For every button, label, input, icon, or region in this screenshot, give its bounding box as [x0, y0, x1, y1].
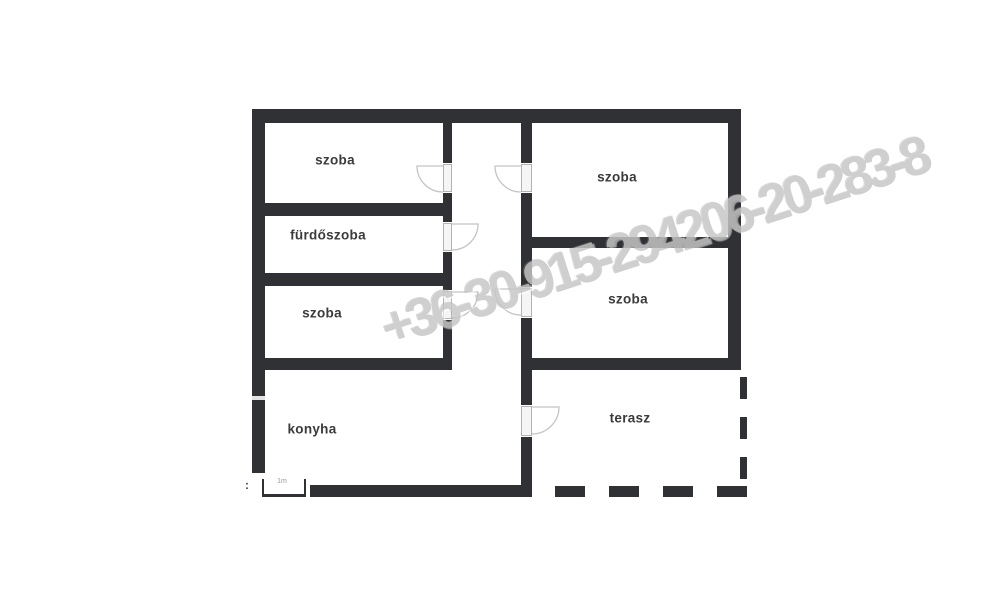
- room-label-konyha: konyha: [287, 422, 336, 437]
- wall-divider-szoba-terasz: [521, 358, 741, 370]
- wall-hall-left-seg1: [443, 120, 452, 163]
- wall-hall-right-seg3: [521, 318, 532, 405]
- door-arc-szoba-top-left: [417, 166, 443, 192]
- wall-hall-left-seg2: [443, 193, 452, 222]
- wall-outer-top: [252, 109, 741, 123]
- door-arc-furdoszoba: [452, 224, 478, 250]
- room-label-szoba-top-left: szoba: [315, 153, 355, 168]
- scale-label: 1m: [262, 478, 302, 485]
- room-label-szoba-mid-right: szoba: [608, 292, 648, 307]
- door-szoba-top-left: [443, 164, 452, 192]
- terrace-dashed-border-bottom: [532, 486, 747, 497]
- wall-joint-notch: [252, 396, 265, 400]
- room-label-szoba-top-right: szoba: [597, 170, 637, 185]
- room-label-terasz: terasz: [610, 411, 651, 426]
- wall-hall-right-seg4: [521, 437, 532, 497]
- floor-plan-canvas: szoba fürdőszoba szoba konyha szoba szob…: [0, 0, 1000, 598]
- wall-divider-szoba-furdoszoba: [265, 203, 452, 216]
- wall-hall-right-seg1: [521, 120, 532, 163]
- door-arc-szoba-top-right: [495, 166, 521, 192]
- door-terasz: [521, 406, 532, 436]
- door-szoba-top-right: [521, 164, 532, 192]
- scale-colon: :: [245, 478, 249, 492]
- scale-legend: : 1m: [236, 473, 310, 515]
- room-label-furdoszoba: fürdőszoba: [290, 228, 366, 243]
- watermark-phone-number: +36-30-915-294206-20-283-8: [375, 128, 933, 355]
- wall-divider-szoba-konyha: [265, 358, 452, 370]
- door-furdoszoba: [443, 223, 452, 251]
- terrace-dashed-border-right: [740, 374, 747, 497]
- room-label-szoba-bottom-left: szoba: [302, 306, 342, 321]
- wall-outer-left: [252, 109, 265, 497]
- door-arc-terasz: [532, 407, 559, 434]
